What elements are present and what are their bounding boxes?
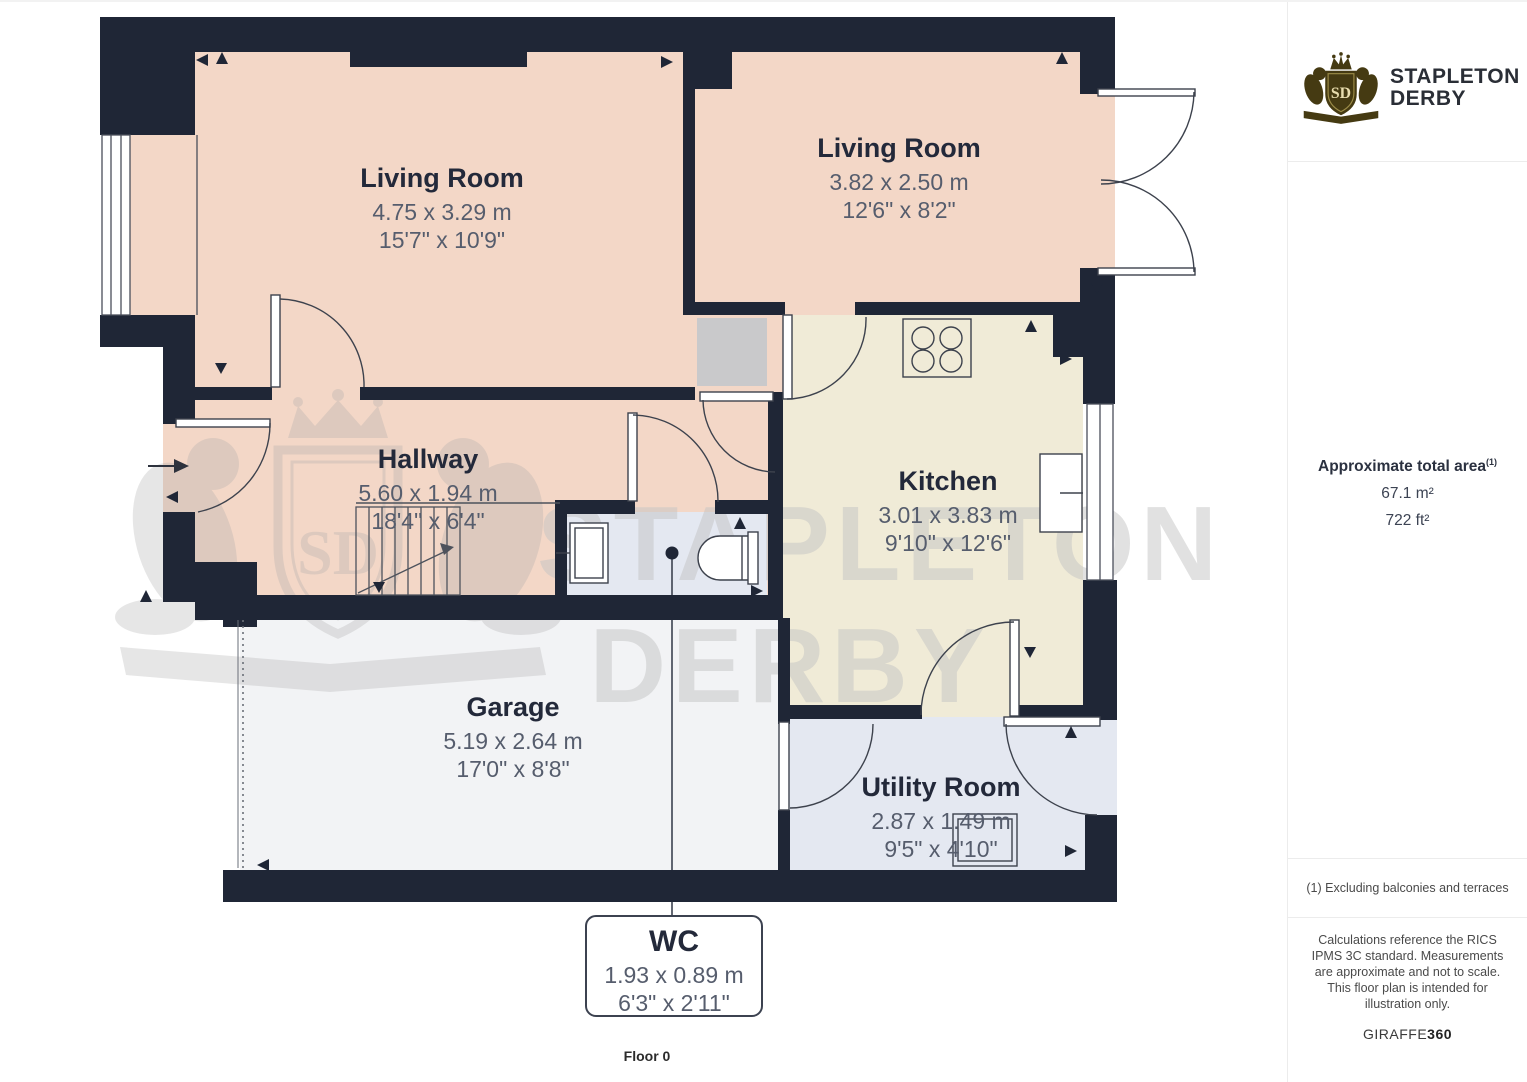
kitchen-sink-icon <box>1040 454 1083 532</box>
room-label-garage: Garage 5.19 x 2.64 m 17'0" x 8'8" <box>443 691 582 783</box>
footnote-section: (1) Excluding balconies and terraces <box>1288 858 1527 918</box>
footnote-text: (1) Excluding balconies and terraces <box>1292 881 1522 895</box>
toilet-icon <box>698 532 758 584</box>
total-area-imperial: 722 ft² <box>1288 512 1527 530</box>
giraffe360-credit: GIRAFFE360 <box>1288 1026 1527 1042</box>
disclaimer-section: Calculations reference the RICS IPMS 3C … <box>1288 932 1527 1042</box>
wc-callout: WC 1.93 x 0.89 m 6'3" x 2'11" <box>585 915 763 1017</box>
sidebar: SD STAPLETON DERBY Approximate total are… <box>1287 2 1527 1082</box>
chimney-block <box>697 318 767 386</box>
brand-crest-icon: SD <box>1298 50 1384 126</box>
room-label-living-room-1: Living Room 4.75 x 3.29 m 15'7" x 10'9" <box>360 162 524 254</box>
room-label-hallway: Hallway 5.60 x 1.94 m 18'4" x 6'4" <box>358 443 497 535</box>
bay-window <box>102 135 130 315</box>
footnote-marker: (1) <box>1486 457 1497 467</box>
room-label-living-room-2: Living Room 3.82 x 2.50 m 12'6" x 8'2" <box>817 132 981 224</box>
disclaimer-text: Calculations reference the RICS IPMS 3C … <box>1288 932 1527 1012</box>
brand-name: STAPLETON DERBY <box>1390 66 1520 110</box>
total-area-metric: 67.1 m² <box>1288 485 1527 503</box>
brand-section: SD STAPLETON DERBY <box>1288 2 1527 162</box>
svg-text:SD: SD <box>1331 85 1351 102</box>
kitchen-window <box>1087 404 1113 580</box>
total-area-block: Approximate total area(1) 67.1 m² 722 ft… <box>1288 457 1527 530</box>
total-area-title: Approximate total area(1) <box>1288 457 1527 476</box>
room-label-kitchen: Kitchen 3.01 x 3.83 m 9'10" x 12'6" <box>878 465 1017 557</box>
wc-leader-dot <box>666 547 679 560</box>
brand-logo: SD STAPLETON DERBY <box>1298 50 1520 126</box>
floor-label: Floor 0 <box>624 1048 671 1064</box>
floorplan-page: SD STAPLETON DERBY <box>0 0 1527 1082</box>
room-label-utility-room: Utility Room 2.87 x 1.49 m 9'5" x 4'10" <box>862 771 1021 863</box>
